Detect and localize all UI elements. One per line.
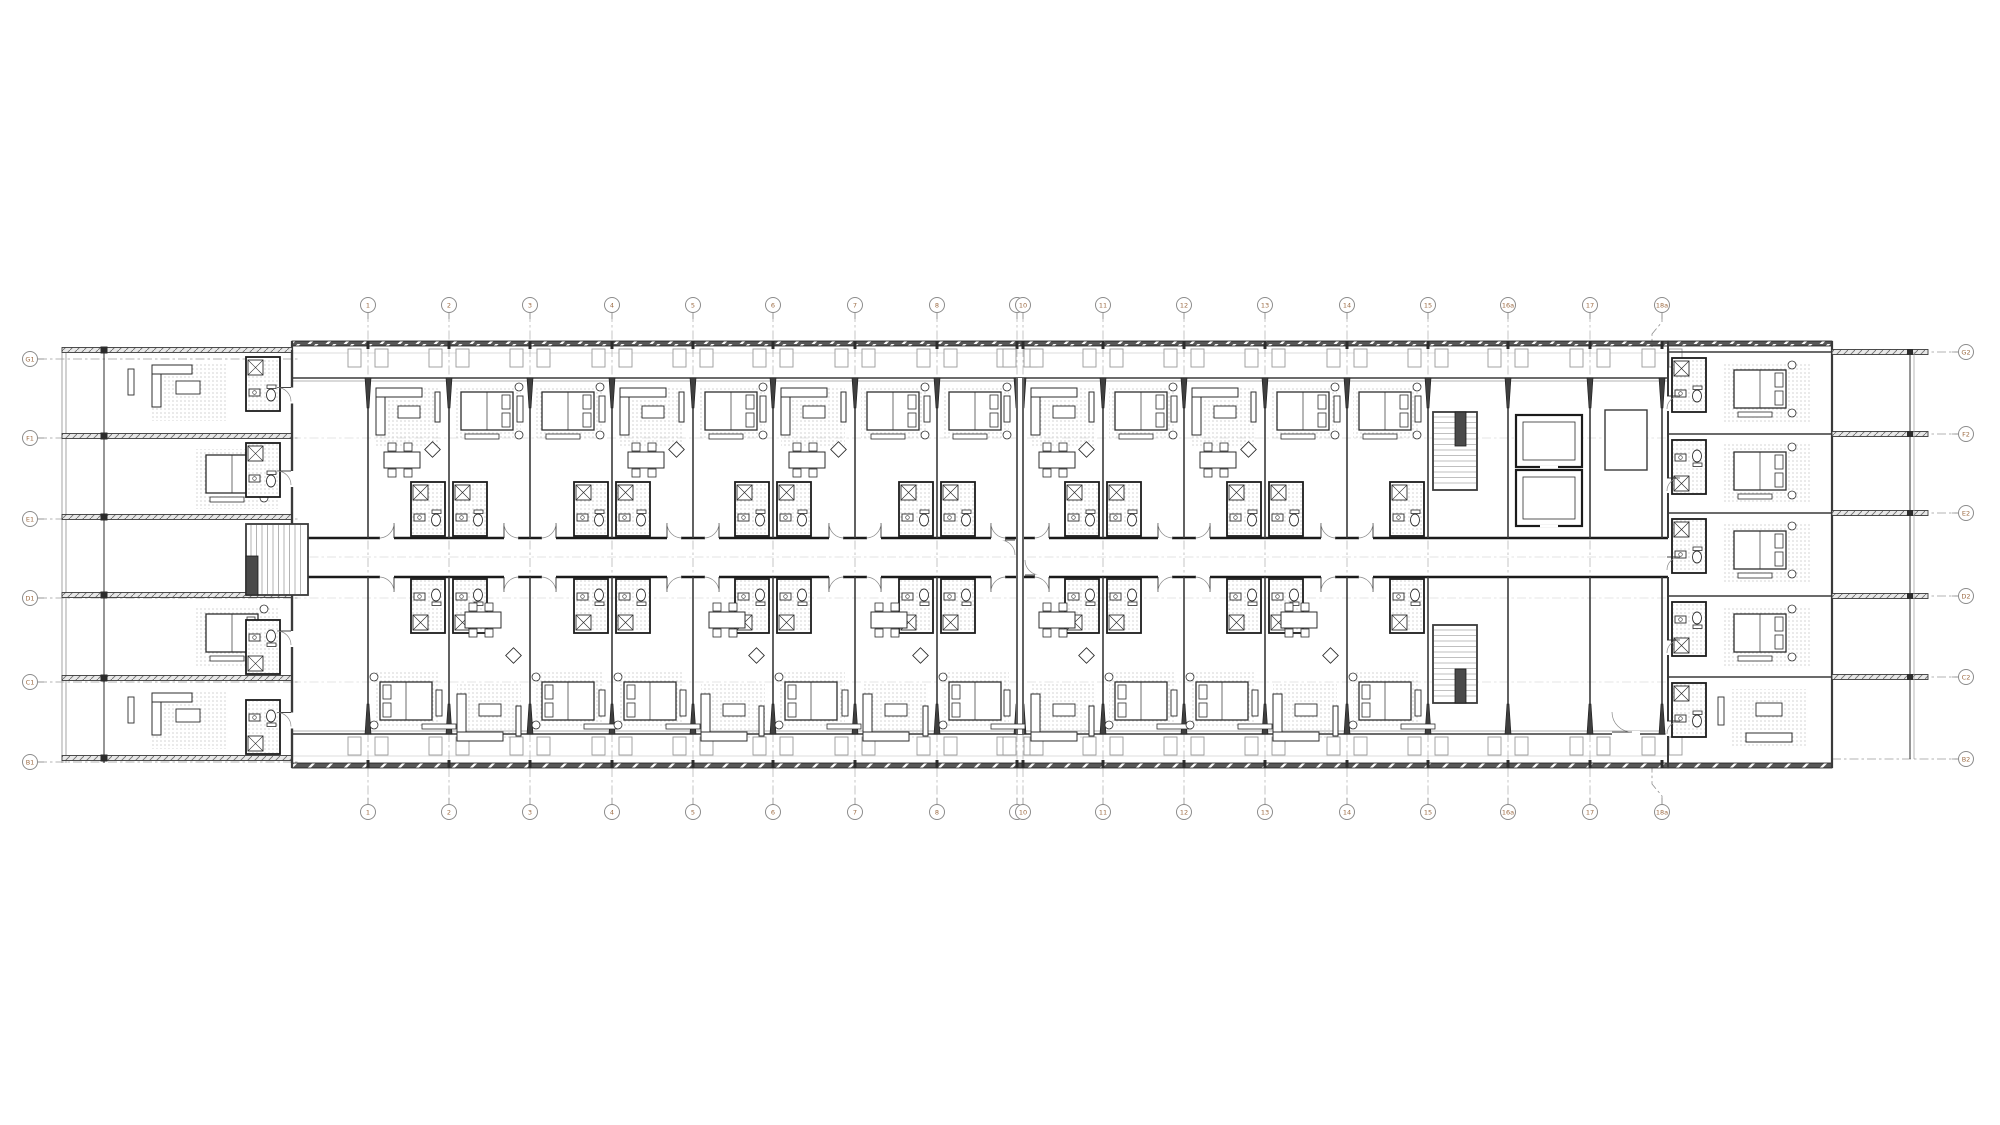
grid-bubble: 16a [1501,298,1516,313]
left-wing-room-bed [196,605,295,674]
room-bottom-living [701,575,769,742]
grid-bubble-label: 12 [1180,808,1188,816]
grid-bubble: B1 [23,755,38,770]
grid-bubble-label: 16a [1502,301,1514,309]
grid-bubble-label: 1 [366,808,370,816]
right-wing-room-bed [1666,440,1813,504]
grid-bubble: 8 [930,298,945,313]
grid-bubble-label: 18a [1656,808,1668,816]
grid-bubble: G2 [1959,345,1974,360]
grid-bubble-label: F1 [26,434,34,442]
room-bottom-living [453,575,521,742]
room-top-living [616,388,684,541]
room-bottom-stair [1433,625,1477,703]
room-top-elevator [1516,415,1582,526]
grid-bubble-label: 5 [691,301,695,309]
room-top-bed [1269,383,1340,541]
grid-bubble-label: 10 [1019,301,1027,309]
grid-bubble: 17 [1583,298,1598,313]
grid-bubble-label: D1 [25,594,34,602]
room-bottom-living [1031,575,1099,742]
grid-bubble-label: E1 [26,515,34,523]
grid-bubble: 6 [766,298,781,313]
grid-bubble: 16a [1501,805,1516,820]
grid-bubble-label: 14 [1343,808,1351,816]
right-wing [1666,341,1929,768]
grid-bubble-label: 6 [771,301,775,309]
grid-bubble-label: 18a [1656,301,1668,309]
right-wing-room-living [1666,683,1809,747]
left-wing-room-living [128,691,295,754]
grid-bubble: C2 [1959,670,1974,685]
grid-bubble: 8 [930,805,945,820]
grid-bubble-label: F2 [1962,430,1970,438]
room-top-bed [1107,383,1177,541]
grid-bubble: 2 [442,805,457,820]
grid-bubble-label: 12 [1180,301,1188,309]
room-top-bed [1353,383,1424,541]
room-top-bed [453,383,523,541]
grid-bubble-label: 5 [691,808,695,816]
grid-bubble: C1 [23,675,38,690]
grid-bubble: 18a [1655,805,1670,820]
grid-bubble: 2 [442,298,457,313]
grid-bubble: 10 [1016,805,1031,820]
grid-bubble-label: 13 [1261,301,1269,309]
room-top-bed [941,383,1011,541]
grid-bubble-label: C1 [26,678,35,686]
grid-bubble: D1 [23,591,38,606]
room-bottom-living [863,575,933,742]
grid-bubble-label: 15 [1424,808,1432,816]
room-bottom-bed [939,575,1025,730]
grid-bubble: 5 [686,805,701,820]
grid-bubble: 11 [1096,805,1111,820]
grid-bubble: D2 [1959,589,1974,604]
grid-bubble-label: C2 [1962,673,1971,681]
grid-bubble-label: 2 [447,301,451,309]
grid-bubble: 14 [1340,298,1355,313]
grid-bubble: 15 [1421,298,1436,313]
grid-bubble-label: 3 [528,301,532,309]
grid-bubble-label: D2 [1961,592,1970,600]
grid-bubble-label: G1 [25,355,34,363]
grid-bubble: 12 [1177,298,1192,313]
grid-bubble: 13 [1258,298,1273,313]
room-bottom-bed [1186,575,1272,730]
room-top-living [376,388,445,541]
room-top-bed [536,383,608,541]
grid-bubble: 1 [361,298,376,313]
grid-bubble-label: 7 [853,808,857,816]
grid-bubble-label: 14 [1343,301,1351,309]
grid-bubble: B2 [1959,752,1974,767]
grid-bubble: F2 [1959,427,1974,442]
grid-bubble: 1 [361,805,376,820]
grid-bubble: 7 [848,805,863,820]
room-top-living [1031,388,1099,541]
grid-bubble-label: 17 [1586,301,1594,309]
room-top-living [777,388,846,541]
room-top-bed [699,383,769,541]
grid-bubble: 3 [523,298,538,313]
grid-bubble: 5 [686,298,701,313]
floor-plan-sheet: 12345678910111213141516a1718a12345678910… [0,0,2000,1125]
room-top-living [1192,388,1261,541]
grid-bubble-label: 6 [771,808,775,816]
grid-bubble-label: 11 [1099,808,1107,816]
room-bottom-bed [614,575,700,730]
left-wing-room-bed [196,443,295,509]
room-top-bed [861,383,933,541]
grid-bubble: 4 [605,298,620,313]
grid-bubble: 18a [1655,298,1670,313]
grid-bubble-label: 13 [1261,808,1269,816]
grid-bubble: 4 [605,805,620,820]
grid-bubble-label: 4 [610,808,614,816]
room-bottom-bed [775,575,861,730]
grid-bubble: 17 [1583,805,1598,820]
grid-bubble-label: 7 [853,301,857,309]
grid-bubble: G1 [23,352,38,367]
grid-bubble-label: 8 [935,808,939,816]
room-bottom-bed [1105,575,1191,730]
floor-plan-drawing: 12345678910111213141516a1718a12345678910… [0,0,2000,1125]
grid-bubble: E2 [1959,506,1974,521]
grid-bubble-label: E2 [1962,509,1970,517]
grid-bubble-label: 10 [1019,808,1027,816]
left-wing [62,347,308,764]
grid-bubble: F1 [23,431,38,446]
grid-bubble-label: 2 [447,808,451,816]
grid-bubble: 3 [523,805,538,820]
grid-bubble: 7 [848,298,863,313]
grid-bubble: E1 [23,512,38,527]
grid-bubble-label: 8 [935,301,939,309]
room-bottom-bed [532,575,618,730]
room-bottom-living [1269,575,1338,742]
grid-bubble-label: 3 [528,808,532,816]
right-wing-room-bed [1666,519,1813,583]
grid-bubble: 11 [1096,298,1111,313]
grid-bubble-label: B2 [1962,755,1971,763]
grid-bubble: 13 [1258,805,1273,820]
left-wing-room-living [128,357,295,421]
room-top-stair [1433,412,1477,490]
grid-bubble: 6 [766,805,781,820]
room-bottom-bed [370,575,456,730]
grid-bubble: 10 [1016,298,1031,313]
room-bottom-bed [1349,575,1435,730]
right-wing-room-bed [1666,358,1813,422]
grid-bubble-label: 15 [1424,301,1432,309]
building [62,341,1928,768]
grid-bubble: 12 [1177,805,1192,820]
grid-bubble-label: 4 [610,301,614,309]
room-bottom-lobby [1612,712,1640,737]
grid-bubble-label: 1 [366,301,370,309]
grid-bubble-label: B1 [26,758,35,766]
grid-bubble-label: G2 [1961,348,1970,356]
right-wing-room-bed [1666,602,1813,666]
grid-bubble: 15 [1421,805,1436,820]
grid-bubble-label: 17 [1586,808,1594,816]
left-wing-room-stair [246,524,308,595]
room-top-lobby [1605,410,1647,470]
grid-bubble-label: 16a [1502,808,1514,816]
grid-bubble: 14 [1340,805,1355,820]
grid-bubble-label: 11 [1099,301,1107,309]
